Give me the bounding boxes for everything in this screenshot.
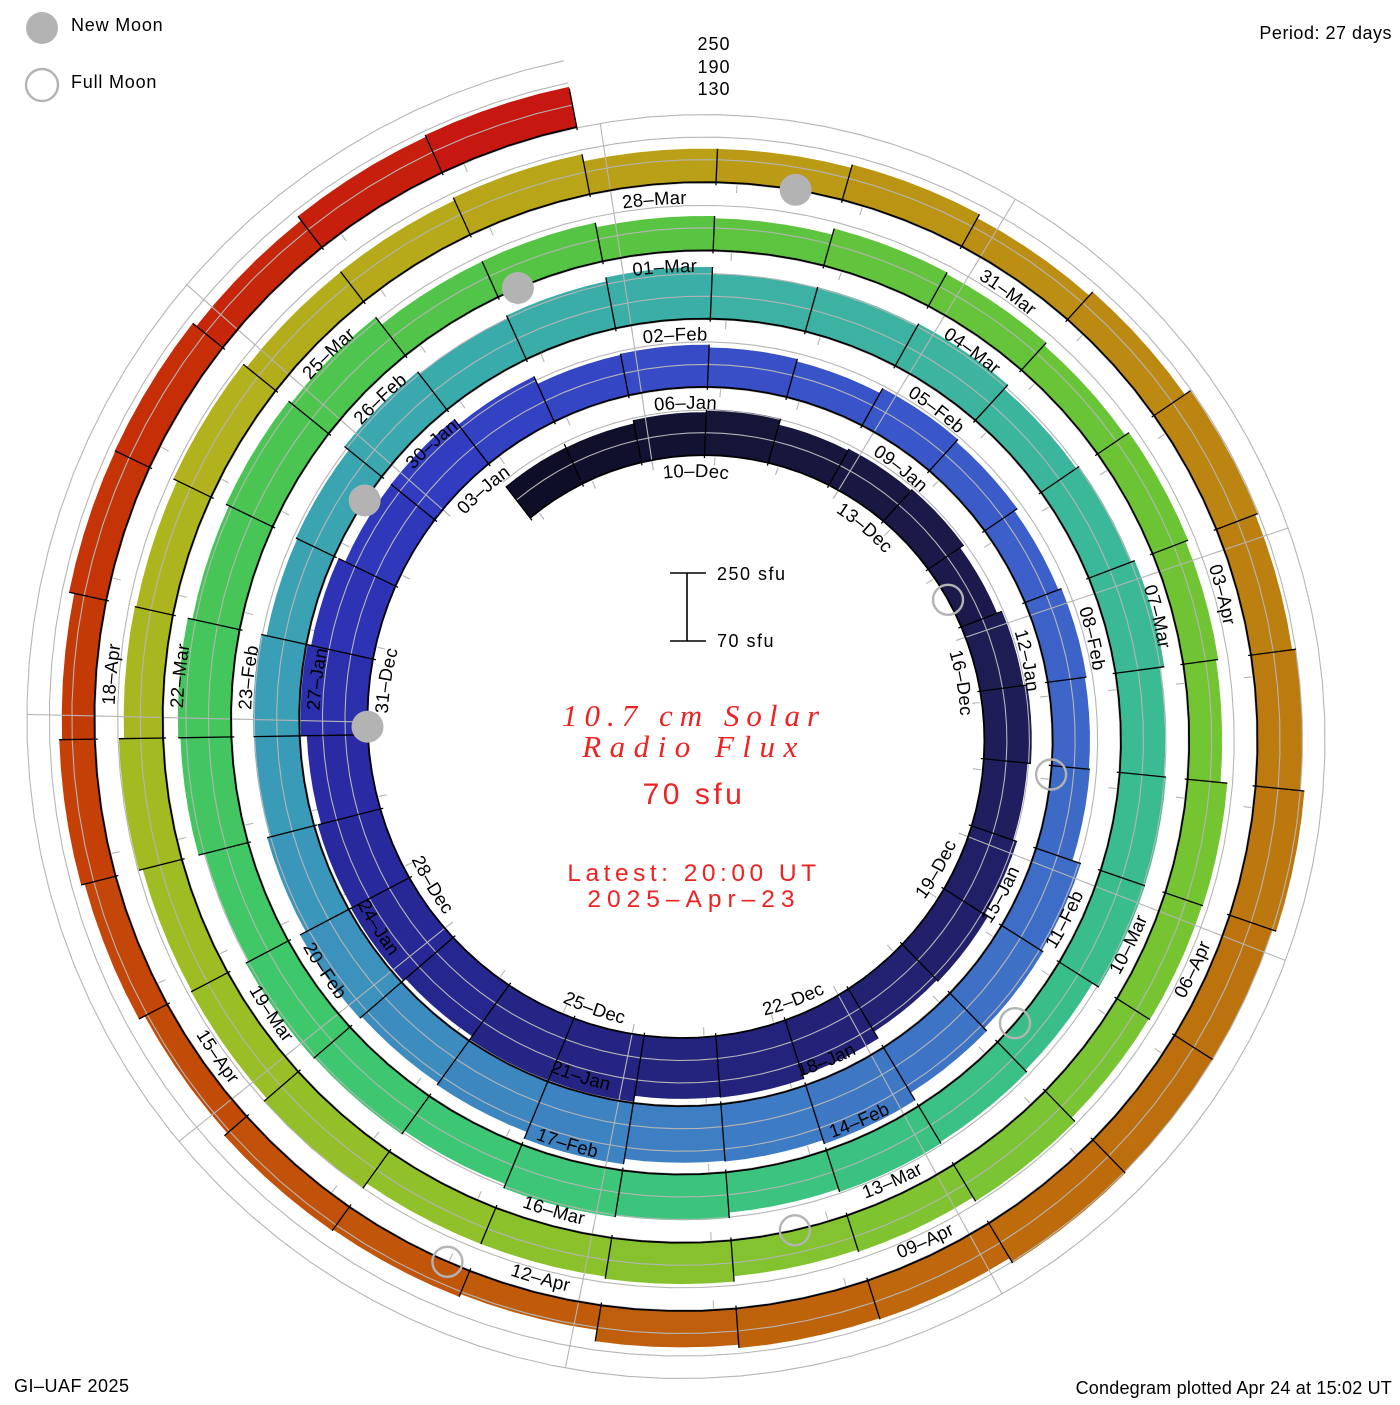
svg-text:250 sfu: 250 sfu [717,564,787,584]
svg-text:Latest: 20:00 UT: Latest: 20:00 UT [567,860,820,887]
svg-text:2025–Apr–23: 2025–Apr–23 [587,886,800,913]
svg-text:Period: 27 days: Period: 27 days [1259,23,1392,43]
svg-text:GI–UAF 2025: GI–UAF 2025 [14,1376,130,1396]
svg-text:250: 250 [697,34,730,54]
svg-text:10–Dec: 10–Dec [662,460,731,483]
svg-text:70 sfu: 70 sfu [643,778,746,811]
svg-text:190: 190 [697,57,730,77]
svg-text:Radio Flux: Radio Flux [581,729,806,764]
svg-text:06–Jan: 06–Jan [653,392,718,415]
svg-text:New Moon: New Moon [71,15,163,35]
svg-text:10.7 cm Solar: 10.7 cm Solar [562,698,826,733]
svg-text:70 sfu: 70 sfu [717,631,775,651]
svg-text:Condegram plotted Apr 24 at 15: Condegram plotted Apr 24 at 15:02 UT [1076,1378,1392,1398]
svg-text:130: 130 [697,79,730,99]
svg-text:Full Moon: Full Moon [71,72,157,92]
